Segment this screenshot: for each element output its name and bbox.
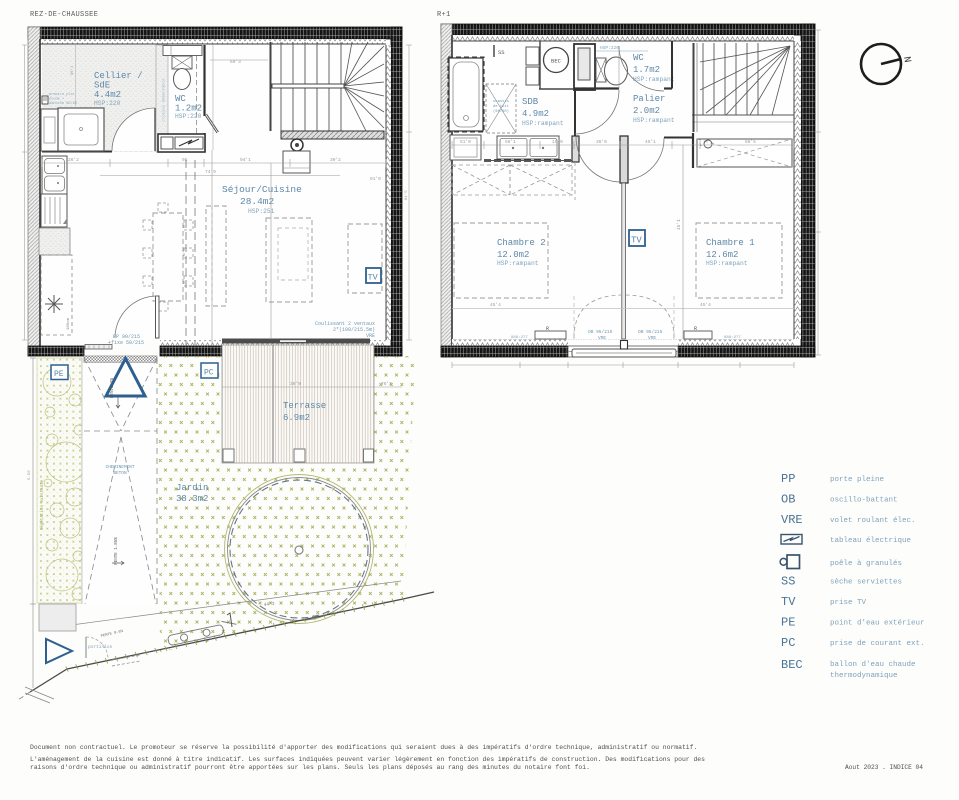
svg-text:45'1: 45'1 [676,219,682,230]
svg-text:PC: PC [204,369,214,378]
svg-text:1.2m2: 1.2m2 [175,104,202,114]
svg-text:TV: TV [631,236,642,246]
svg-text:4.9m2: 4.9m2 [522,109,549,119]
svg-text:HSP:rampant: HSP:rampant [633,117,675,124]
svg-text:51'0: 51'0 [460,139,471,145]
svg-text:19'0: 19'0 [552,139,563,145]
svg-text:61'5: 61'5 [404,190,409,200]
svg-text:PENTE 2%: PENTE 2% [111,377,115,398]
svg-text:végétation existante: végétation existante [40,479,45,530]
svg-text:28.4m2: 28.4m2 [240,196,275,207]
svg-text:de toit: de toit [493,104,509,109]
svg-text:96: 96 [182,157,188,163]
svg-text:Aout 2023 . INDICE 04: Aout 2023 . INDICE 04 [845,764,923,771]
svg-text:30'2: 30'2 [330,157,341,163]
svg-text:OB 95/215: OB 95/215 [638,329,663,335]
svg-text:74'9: 74'9 [205,169,216,175]
svg-text:12.0m2: 12.0m2 [497,250,529,260]
svg-text:VRE: VRE [648,335,656,341]
svg-text:45'4: 45'4 [700,302,711,308]
svg-text:WC: WC [175,94,186,104]
svg-text:SdE: SdE [94,81,110,91]
svg-text:38.3m2: 38.3m2 [176,494,208,504]
svg-text:REZ-DE-CHAUSSEE: REZ-DE-CHAUSSEE [30,11,98,19]
svg-text:95'1: 95'1 [70,65,75,75]
svg-text:portillon: portillon [88,644,113,650]
svg-text:cloison démontable: cloison démontable [162,78,167,122]
svg-text:prise de courant ext.: prise de courant ext. [830,640,925,648]
svg-text:point d'eau extérieur: point d'eau extérieur [830,620,925,628]
svg-text:Chambre 2: Chambre 2 [497,238,546,248]
svg-text:étude +: étude + [49,97,64,102]
svg-text:(60/90): (60/90) [493,109,509,114]
svg-text:sèche serviettes: sèche serviettes [830,579,902,587]
svg-text:68'5: 68'5 [745,139,756,145]
svg-text:CHEMINEMENT: CHEMINEMENT [106,465,135,470]
svg-text:Séjour/Cuisine: Séjour/Cuisine [222,184,302,195]
svg-text:94'1: 94'1 [240,157,251,163]
svg-text:HSP:220: HSP:220 [175,113,202,120]
svg-text:4.4m2: 4.4m2 [94,90,121,100]
svg-text:OB: OB [781,493,795,507]
svg-text:raisons d'ordre technique ou a: raisons d'ordre technique ou administrat… [30,764,590,771]
svg-text:L'aménagement de la cuisine es: L'aménagement de la cuisine est donné à … [30,756,705,763]
svg-text:PC: PC [781,636,795,650]
svg-text:+fixe 50/215: +fixe 50/215 [108,340,144,346]
svg-text:45'1: 45'1 [645,139,656,145]
svg-text:30'9: 30'9 [290,381,301,387]
svg-text:1.7m2: 1.7m2 [633,65,660,75]
svg-text:36'0: 36'0 [596,139,607,145]
svg-text:PE: PE [54,370,64,379]
svg-text:HSP:rampant: HSP:rampant [633,76,675,83]
svg-text:VRE: VRE [366,333,375,339]
svg-text:ballon d'eau chaude: ballon d'eau chaude [830,661,916,669]
svg-text:VRE: VRE [781,513,803,527]
svg-text:HSP:251: HSP:251 [248,208,275,215]
svg-text:poêle à granulés: poêle à granulés [830,560,902,568]
svg-text:TV: TV [781,595,796,609]
svg-text:Document non contractuel. Le p: Document non contractuel. Le promoteur s… [30,744,697,751]
svg-text:180cm: 180cm [67,317,71,330]
svg-text:HSP:rampant: HSP:rampant [497,260,539,267]
svg-text:porte pleine: porte pleine [830,476,884,484]
svg-text:BETON: BETON [113,471,127,476]
svg-text:SDB: SDB [522,97,539,107]
svg-text:HSP:rampant: HSP:rampant [706,260,748,267]
svg-text:5.50: 5.50 [28,470,32,480]
svg-text:888:277: 888:277 [724,336,741,340]
svg-text:R: R [694,326,697,332]
svg-text:HSP:220: HSP:220 [600,45,619,51]
svg-text:2.0m2: 2.0m2 [633,106,660,116]
svg-text:BEC: BEC [551,58,562,65]
svg-text:OB 95/215: OB 95/215 [588,329,613,335]
svg-text:PP: PP [781,472,795,486]
svg-text:WC: WC [633,53,644,63]
svg-text:PENTE 1.85%: PENTE 1.85% [115,537,119,565]
svg-text:BEC: BEC [781,658,803,672]
svg-text:91'0: 91'0 [370,176,381,182]
svg-text:76'3: 76'3 [381,381,392,387]
svg-text:armoire plor: armoire plor [49,92,75,97]
svg-text:Cellier /: Cellier / [94,71,143,81]
svg-text:HSP:220: HSP:220 [94,100,121,107]
svg-text:TV: TV [368,273,379,283]
svg-text:58'1: 58'1 [505,139,516,145]
svg-text:thermodynamique: thermodynamique [830,672,898,680]
svg-text:45'4: 45'4 [490,302,501,308]
svg-text:VRE: VRE [598,335,606,341]
svg-text:R: R [546,326,549,332]
svg-text:HSP:rampant: HSP:rampant [522,120,564,127]
svg-text:oscillo-battant: oscillo-battant [830,497,898,505]
svg-text:888:277: 888:277 [511,336,528,340]
svg-text:Terrasse: Terrasse [283,401,326,411]
svg-text:6.9m2: 6.9m2 [283,413,310,423]
svg-text:tableau électrique: tableau électrique [830,537,911,545]
svg-text:SS: SS [781,575,795,589]
svg-text:R+1: R+1 [437,11,451,19]
svg-text:SS: SS [498,49,505,56]
svg-text:adhoche 60/60: adhoche 60/60 [49,101,77,106]
svg-text:chassis: chassis [493,99,509,104]
svg-text:Palier: Palier [633,94,665,104]
svg-text:Chambre 1: Chambre 1 [706,238,755,248]
svg-text:26'2: 26'2 [68,157,79,163]
svg-text:prise TV: prise TV [830,599,867,607]
svg-text:volet roulant élec.: volet roulant élec. [830,517,916,525]
svg-text:PE: PE [781,616,795,630]
svg-text:12.6m2: 12.6m2 [706,250,738,260]
svg-text:Jardin: Jardin [176,483,208,493]
